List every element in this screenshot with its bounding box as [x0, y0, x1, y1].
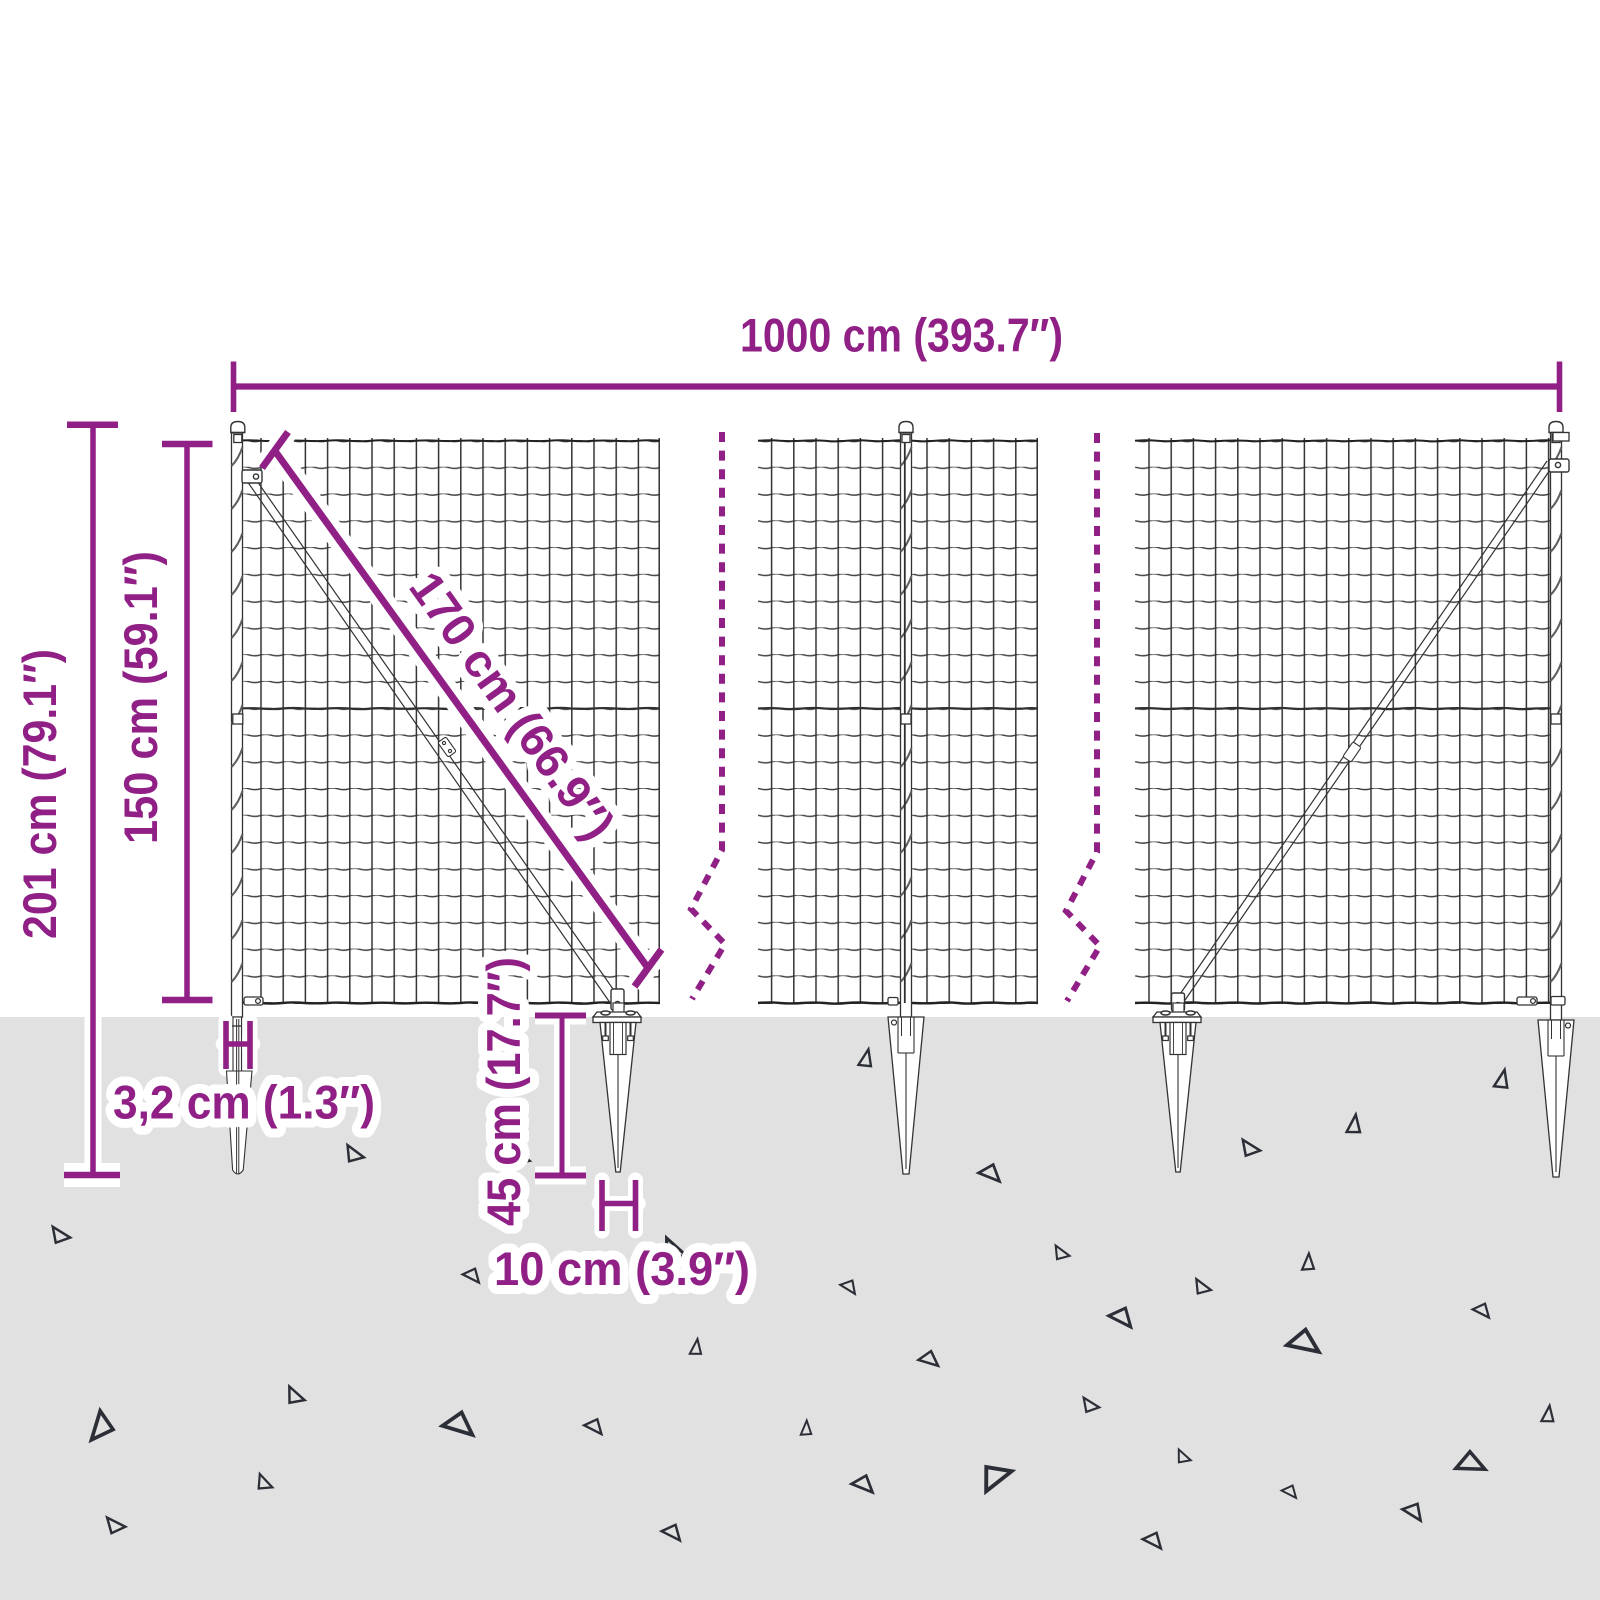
svg-text:45 cm (17.7″): 45 cm (17.7″)	[477, 957, 530, 1226]
svg-text:10 cm (3.9″): 10 cm (3.9″)	[494, 1242, 750, 1295]
svg-text:3,2 cm (1.3″): 3,2 cm (1.3″)	[113, 1076, 375, 1129]
svg-text:1000 cm (393.7″): 1000 cm (393.7″)	[740, 309, 1063, 362]
svg-text:150 cm (59.1″): 150 cm (59.1″)	[114, 551, 167, 844]
svg-text:201 cm (79.1″): 201 cm (79.1″)	[13, 649, 66, 939]
